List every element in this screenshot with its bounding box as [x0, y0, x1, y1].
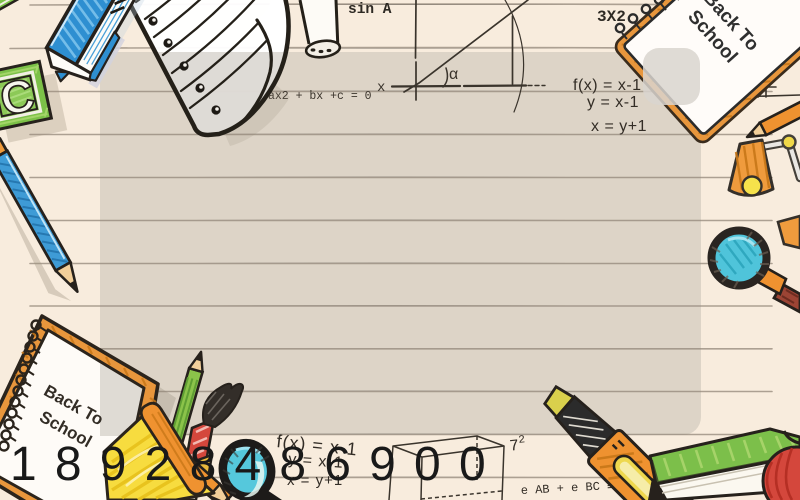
- svg-text:x: x: [377, 80, 385, 96]
- svg-text:x = y+1: x = y+1: [591, 118, 647, 135]
- svg-text:sin A: sin A: [348, 2, 392, 18]
- svg-text:y = x-1: y = x-1: [587, 94, 639, 111]
- svg-text:α: α: [449, 66, 458, 83]
- svg-text:f(x) = x-1: f(x) = x-1: [573, 77, 642, 94]
- svg-text:18928486900: 18928486900: [10, 438, 504, 491]
